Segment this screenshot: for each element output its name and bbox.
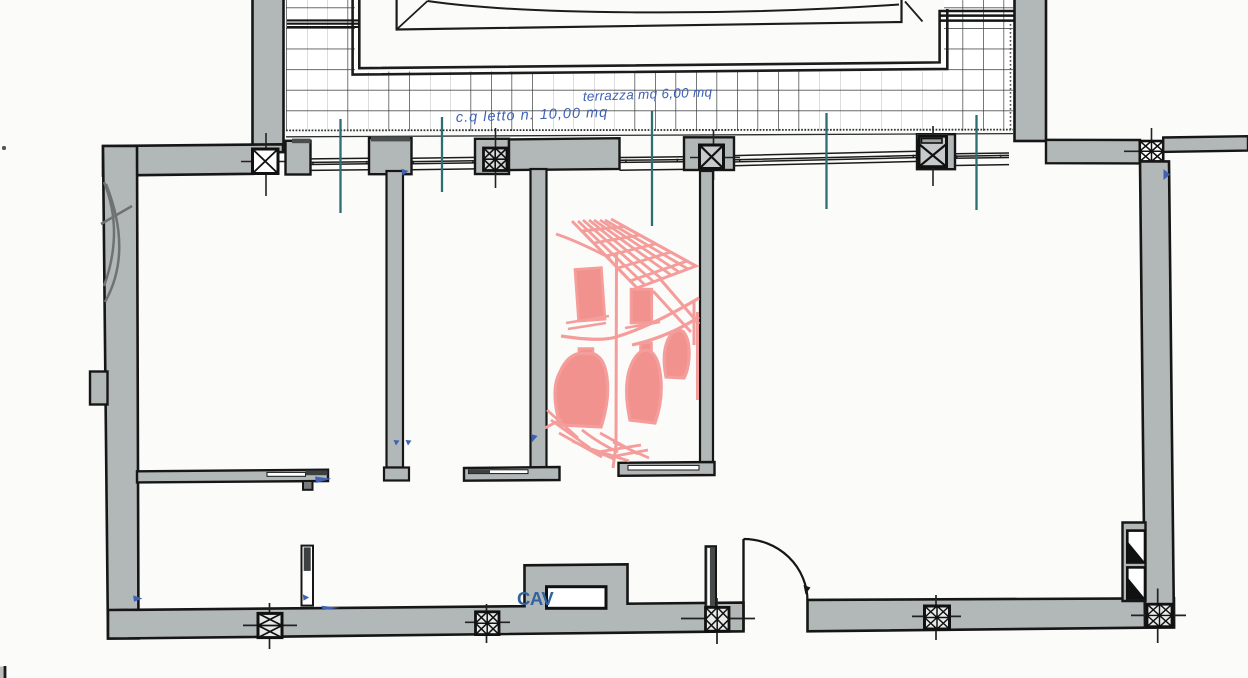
- svg-text:CAV: CAV: [517, 588, 554, 609]
